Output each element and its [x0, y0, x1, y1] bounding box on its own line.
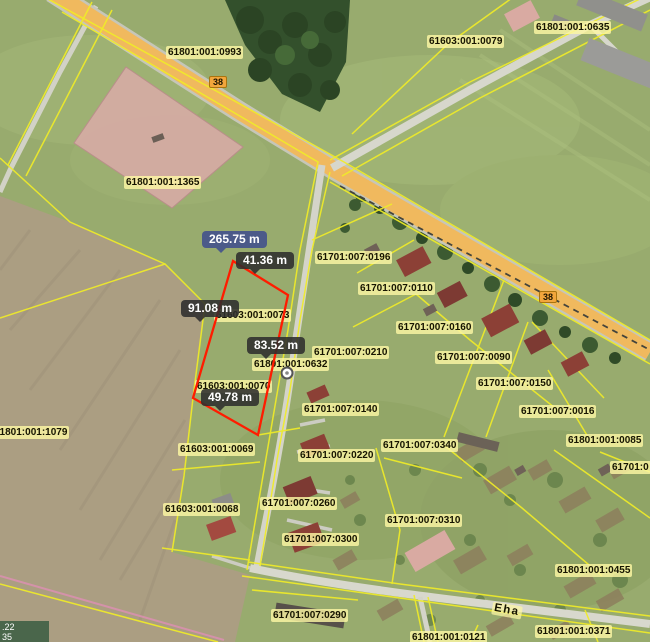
parcel-label: 61801:001:1079	[0, 426, 69, 439]
parcel-label: 61701:007:0220	[298, 449, 375, 462]
parcel-label: 61603:001:0068	[163, 503, 240, 516]
parcel-label: 61701:007:0290	[271, 609, 348, 622]
parcel-label: 61701:007:0260	[260, 497, 337, 510]
measurement-segment-badge: 91.08 m	[181, 300, 239, 317]
map-canvas[interactable]: 61801:001:0993 61603:001:0079 61801:001:…	[0, 0, 650, 642]
parcel-label: 61701:007:0196	[315, 251, 392, 264]
measurement-segment-badge: 49.78 m	[201, 389, 259, 406]
measurement-total-badge: 265.75 m	[202, 231, 267, 248]
coordinate-line: 35	[2, 632, 46, 642]
coordinate-line: .22	[2, 622, 46, 632]
parcel-label: 61701:007:0310	[385, 514, 462, 527]
parcel-label: 61701:007:0160	[396, 321, 473, 334]
parcel-label: 61603:001:0079	[427, 35, 504, 48]
parcel-label: 61701:0	[610, 461, 650, 474]
parcel-label: 61801:001:1365	[124, 176, 201, 189]
parcel-label: 61701:007:0300	[282, 533, 359, 546]
parcel-label: 61701:007:0140	[302, 403, 379, 416]
parcel-label: 61801:001:0455	[555, 564, 632, 577]
parcel-label: 61801:001:0635	[534, 21, 611, 34]
parcel-label: 61701:007:0016	[519, 405, 596, 418]
parcel-label: 61701:007:0150	[476, 377, 553, 390]
road-number-badge: 38	[539, 291, 557, 303]
parcel-label: 61801:001:0085	[566, 434, 643, 447]
measurement-segment-badge: 83.52 m	[247, 337, 305, 354]
parcel-label: 61801:001:0371	[535, 625, 612, 638]
measurement-segment-badge: 41.36 m	[236, 252, 294, 269]
parcel-label: 61603:001:0069	[178, 443, 255, 456]
parcel-label: 61701:007:0110	[358, 282, 435, 295]
parcel-label: 61701:007:0340	[381, 439, 458, 452]
parcel-label: 61701:007:0090	[435, 351, 512, 364]
road-number-badge: 38	[209, 76, 227, 88]
parcel-label: 61801:001:0121	[410, 631, 487, 642]
coordinate-readout: .22 35	[0, 621, 49, 642]
parcel-label: 61801:001:0993	[166, 46, 243, 59]
